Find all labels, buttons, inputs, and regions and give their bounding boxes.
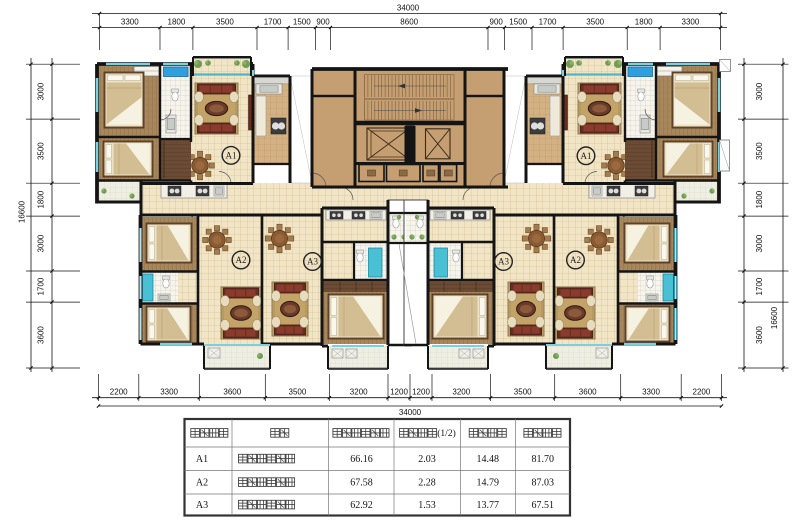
svg-text:16600: 16600 (18, 200, 27, 223)
svg-text:8600: 8600 (400, 18, 418, 27)
svg-text:3200: 3200 (452, 388, 470, 397)
svg-text:3500: 3500 (755, 142, 764, 160)
svg-text:34000: 34000 (399, 408, 422, 417)
svg-text:3300: 3300 (642, 388, 660, 397)
svg-text:1200: 1200 (390, 388, 408, 397)
svg-text:3600: 3600 (37, 326, 46, 344)
svg-text:3500: 3500 (289, 388, 307, 397)
svg-text:1800: 1800 (635, 18, 653, 27)
svg-text:1800: 1800 (36, 190, 45, 208)
svg-text:(1/2): (1/2) (437, 428, 455, 439)
svg-text:A1: A1 (196, 454, 208, 465)
svg-text:14.48: 14.48 (476, 454, 499, 465)
svg-text:3600: 3600 (755, 326, 764, 344)
svg-text:1.53: 1.53 (418, 500, 436, 511)
svg-text:A2: A2 (236, 255, 247, 265)
svg-text:A2: A2 (570, 255, 581, 265)
svg-text:3600: 3600 (579, 388, 597, 397)
svg-text:3000: 3000 (755, 234, 764, 252)
svg-text:1700: 1700 (37, 277, 46, 295)
svg-text:34000: 34000 (397, 4, 420, 13)
svg-text:3000: 3000 (37, 234, 46, 252)
svg-text:2.03: 2.03 (418, 454, 436, 465)
svg-text:3200: 3200 (350, 388, 368, 397)
svg-text:3300: 3300 (121, 18, 139, 27)
svg-text:3000: 3000 (755, 82, 764, 100)
svg-text:1500: 1500 (293, 18, 311, 27)
svg-text:A1: A1 (581, 151, 592, 161)
svg-text:14.79: 14.79 (476, 478, 499, 489)
svg-text:3000: 3000 (37, 82, 46, 100)
svg-text:66.16: 66.16 (350, 454, 373, 465)
svg-text:2200: 2200 (110, 388, 128, 397)
svg-text:A1: A1 (226, 150, 237, 160)
svg-text:900: 900 (316, 18, 330, 27)
svg-text:1200: 1200 (412, 388, 430, 397)
svg-text:1800: 1800 (168, 18, 186, 27)
svg-text:900: 900 (490, 18, 504, 27)
svg-text:62.92: 62.92 (350, 500, 373, 511)
svg-text:87.03: 87.03 (531, 478, 554, 489)
svg-text:2.28: 2.28 (418, 478, 436, 489)
svg-text:3500: 3500 (216, 18, 234, 27)
svg-text:1500: 1500 (509, 18, 527, 27)
svg-text:A3: A3 (196, 500, 208, 511)
svg-text:A2: A2 (196, 478, 208, 489)
svg-text:3500: 3500 (514, 388, 532, 397)
svg-text:A3: A3 (498, 257, 509, 267)
svg-text:2200: 2200 (693, 388, 711, 397)
svg-text:3600: 3600 (223, 388, 241, 397)
svg-text:3300: 3300 (160, 388, 178, 397)
svg-text:67.51: 67.51 (531, 500, 554, 511)
svg-text:1800: 1800 (755, 190, 764, 208)
svg-text:3300: 3300 (682, 18, 700, 27)
svg-text:1700: 1700 (264, 18, 282, 27)
svg-text:81.70: 81.70 (531, 454, 554, 465)
svg-text:1700: 1700 (755, 277, 764, 295)
svg-text:16600: 16600 (770, 306, 779, 329)
svg-text:3500: 3500 (36, 142, 45, 160)
svg-text:3500: 3500 (586, 18, 604, 27)
svg-text:67.58: 67.58 (350, 478, 373, 489)
svg-text:A3: A3 (307, 257, 318, 267)
svg-text:13.77: 13.77 (476, 500, 499, 511)
svg-text:1700: 1700 (539, 18, 557, 27)
